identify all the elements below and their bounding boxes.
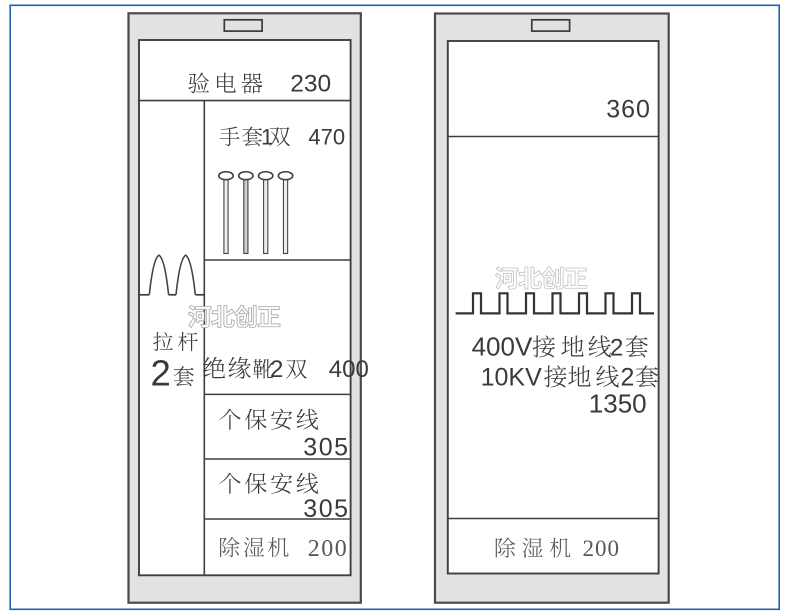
svg-text:2: 2 xyxy=(610,335,623,362)
svg-text:2: 2 xyxy=(151,353,171,394)
svg-text:2: 2 xyxy=(621,364,635,392)
svg-text:360: 360 xyxy=(606,96,651,124)
svg-text:230: 230 xyxy=(290,71,331,98)
svg-text:305: 305 xyxy=(303,495,349,523)
svg-text:2: 2 xyxy=(270,356,283,383)
svg-text:470: 470 xyxy=(308,125,345,150)
svg-text:200: 200 xyxy=(583,536,621,561)
svg-text:400V: 400V xyxy=(472,332,533,362)
svg-text:400: 400 xyxy=(329,356,369,383)
svg-text:1350: 1350 xyxy=(589,389,647,419)
svg-text:305: 305 xyxy=(303,434,349,462)
svg-text:200: 200 xyxy=(308,536,349,562)
svg-text:10KV: 10KV xyxy=(481,364,542,392)
